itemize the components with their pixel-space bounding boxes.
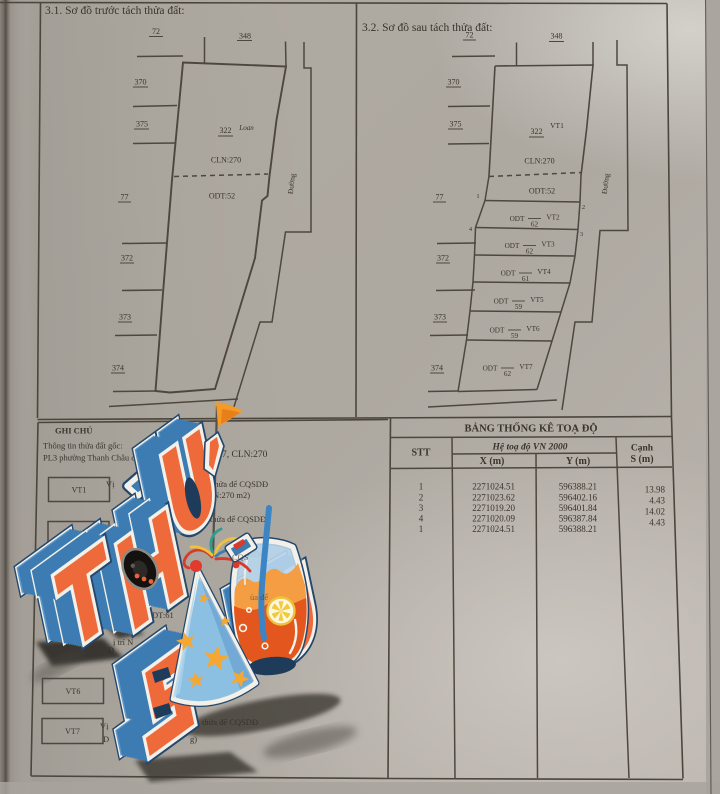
svg-text:4.43: 4.43 xyxy=(649,496,665,506)
svg-text:X (m): X (m) xyxy=(480,456,505,467)
svg-text:373: 373 xyxy=(434,313,446,322)
svg-text:VT6: VT6 xyxy=(526,325,540,333)
svg-text:348: 348 xyxy=(239,32,251,41)
svg-text:1: 1 xyxy=(476,193,479,200)
svg-text:ODT:52: ODT:52 xyxy=(529,187,555,196)
svg-text:370: 370 xyxy=(448,78,460,87)
svg-text:VT6: VT6 xyxy=(66,687,81,696)
svg-text:2271020.09: 2271020.09 xyxy=(472,514,515,524)
svg-text:72: 72 xyxy=(152,27,160,36)
svg-text:322: 322 xyxy=(531,127,543,136)
svg-text:2271019.20: 2271019.20 xyxy=(472,503,515,513)
svg-text:VT2: VT2 xyxy=(546,214,560,222)
svg-text:CQS: CQS xyxy=(232,552,249,562)
svg-text:ODT: ODT xyxy=(490,327,505,335)
svg-text:Hệ toạ độ VN 2000: Hệ toạ độ VN 2000 xyxy=(492,443,568,453)
svg-text:7, CLN:270: 7, CLN:270 xyxy=(222,450,268,460)
svg-text:62: 62 xyxy=(504,370,512,378)
svg-text:59: 59 xyxy=(515,303,523,311)
svg-text:PL3 phường Thanh Châu cũ: PL3 phường Thanh Châu cũ xyxy=(43,453,140,463)
svg-text:62: 62 xyxy=(531,221,539,229)
svg-text:3.1. Sơ đồ trước tách thửa đất: 3.1. Sơ đồ trước tách thửa đất: xyxy=(45,4,185,17)
svg-text:Y (m): Y (m) xyxy=(566,456,590,467)
svg-text:ODT: ODT xyxy=(510,215,525,223)
svg-text:374: 374 xyxy=(112,364,124,373)
svg-text:596388.21: 596388.21 xyxy=(559,524,597,534)
svg-text:2: 2 xyxy=(582,204,585,211)
svg-text:2271023.62: 2271023.62 xyxy=(472,493,515,503)
svg-text:375: 375 xyxy=(450,120,462,129)
svg-text:59: 59 xyxy=(511,332,519,340)
svg-text:S (m): S (m) xyxy=(630,454,653,465)
svg-text:VT1: VT1 xyxy=(550,121,564,130)
svg-text:2: 2 xyxy=(419,493,424,503)
svg-text:2271024.51: 2271024.51 xyxy=(472,524,515,534)
svg-text:61: 61 xyxy=(522,275,530,283)
svg-text:D: D xyxy=(103,734,109,744)
svg-text:ODT:52: ODT:52 xyxy=(209,192,235,201)
svg-text:4: 4 xyxy=(419,514,424,524)
svg-text:4.43: 4.43 xyxy=(649,518,665,528)
svg-text:VT5: VT5 xyxy=(530,296,544,304)
svg-text:322: 322 xyxy=(220,126,232,135)
svg-text:thửa để CQSDĐ: thửa để CQSDĐ xyxy=(210,514,266,524)
svg-text:348: 348 xyxy=(551,32,563,41)
svg-text:596387.84: 596387.84 xyxy=(559,514,598,524)
svg-text:2271024.51: 2271024.51 xyxy=(472,482,515,492)
svg-text:Loan: Loan xyxy=(238,124,254,132)
svg-text:VT3: VT3 xyxy=(541,241,555,249)
svg-text:CLN:270: CLN:270 xyxy=(211,156,241,165)
svg-text:ủa để: ủa để xyxy=(250,592,268,602)
svg-text:596401.84: 596401.84 xyxy=(559,503,598,513)
svg-text:ODT: ODT xyxy=(494,298,509,306)
svg-text:VT7: VT7 xyxy=(65,727,80,736)
svg-text:1: 1 xyxy=(419,482,424,492)
svg-text:77: 77 xyxy=(121,193,129,202)
svg-text:ODT: ODT xyxy=(483,365,498,373)
svg-text:ODT: ODT xyxy=(501,270,516,278)
svg-text:372: 372 xyxy=(437,254,449,263)
svg-text:596388.21: 596388.21 xyxy=(559,482,597,492)
svg-text:596402.16: 596402.16 xyxy=(559,493,598,503)
svg-text:VT4: VT4 xyxy=(537,268,551,276)
svg-text:BẢNG THỐNG KÊ TOẠ ĐỘ: BẢNG THỐNG KÊ TOẠ ĐỘ xyxy=(464,422,597,435)
svg-text:370: 370 xyxy=(135,78,147,87)
svg-text:374: 374 xyxy=(431,364,443,373)
svg-text:14.02: 14.02 xyxy=(645,507,665,517)
svg-text:N:270 m2): N:270 m2) xyxy=(213,490,250,500)
svg-text:373: 373 xyxy=(119,313,131,322)
svg-text:Thông tin thửa đất gốc:: Thông tin thửa đất gốc: xyxy=(43,441,123,451)
svg-text:77: 77 xyxy=(436,193,444,202)
svg-text:Vị: Vị xyxy=(100,721,109,731)
svg-text:Vị: Vị xyxy=(106,479,115,489)
svg-text:375: 375 xyxy=(136,120,148,129)
svg-text:VT7: VT7 xyxy=(519,363,533,371)
svg-text:VT1: VT1 xyxy=(72,486,87,495)
svg-text:CLN:270: CLN:270 xyxy=(524,157,554,166)
svg-text:3: 3 xyxy=(419,503,424,513)
svg-text:3: 3 xyxy=(580,231,583,238)
svg-text:STT: STT xyxy=(412,448,431,459)
svg-text:1: 1 xyxy=(419,524,424,534)
svg-text:372: 372 xyxy=(121,254,133,263)
svg-text:72: 72 xyxy=(466,31,474,40)
svg-text:13.98: 13.98 xyxy=(645,485,666,495)
svg-text:GHI CHÚ: GHI CHÚ xyxy=(55,426,93,436)
svg-text:ODT: ODT xyxy=(505,242,520,250)
svg-text:ị trí N: ị trí N xyxy=(113,637,133,647)
svg-text:62: 62 xyxy=(526,248,534,256)
svg-text:Cạnh: Cạnh xyxy=(631,444,654,454)
svg-text:thửa để CQSDĐ: thửa để CQSDĐ xyxy=(212,479,268,489)
